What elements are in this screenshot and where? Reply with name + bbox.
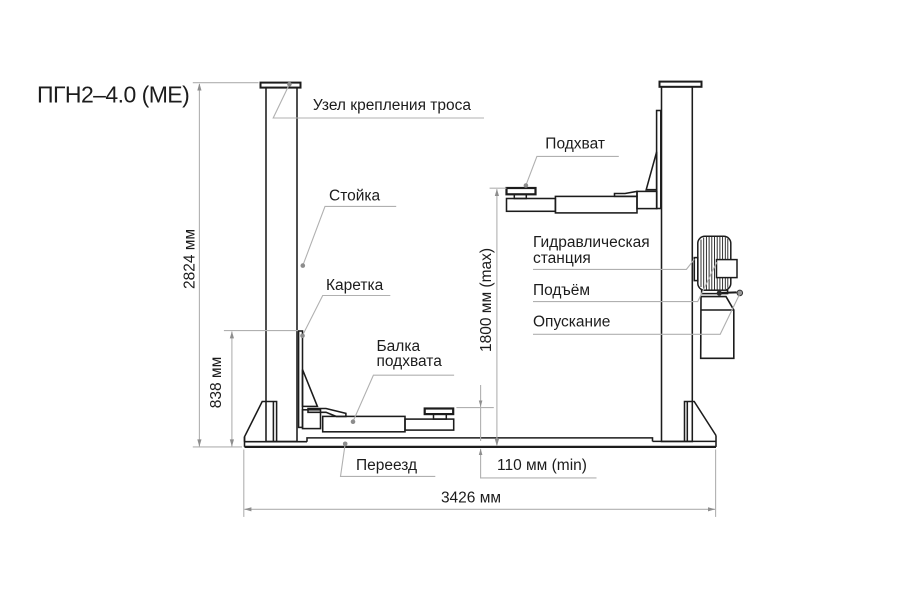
svg-text:Переезд: Переезд [356,457,417,474]
svg-text:станция: станция [533,250,591,267]
svg-text:838 мм: 838 мм [208,357,225,408]
svg-text:3426 мм: 3426 мм [441,490,501,507]
svg-text:Стойка: Стойка [329,188,381,205]
svg-text:Гидравлическая: Гидравлическая [533,234,650,251]
svg-text:Узел крепления троса: Узел крепления троса [313,97,471,114]
svg-text:1800 мм (max): 1800 мм (max) [478,248,495,352]
svg-text:Каретка: Каретка [326,277,384,294]
svg-text:Опускание: Опускание [533,314,610,331]
svg-text:2824 мм: 2824 мм [182,229,199,289]
svg-text:Подхват: Подхват [545,135,605,152]
svg-text:ПГН2–4.0 (МЕ): ПГН2–4.0 (МЕ) [37,82,189,108]
svg-text:110 мм (min): 110 мм (min) [497,457,587,474]
svg-text:Подъём: Подъём [533,282,590,299]
svg-text:подхвата: подхвата [377,353,443,370]
